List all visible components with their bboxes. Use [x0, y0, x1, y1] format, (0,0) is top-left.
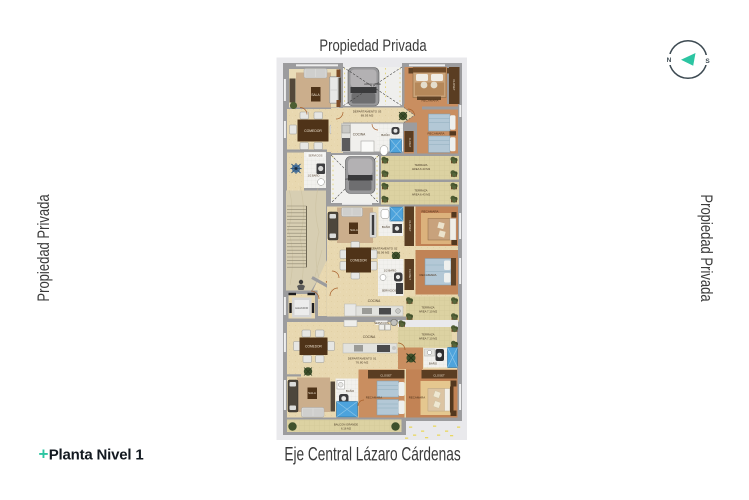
svg-text:ELEVADOR: ELEVADOR	[295, 307, 308, 310]
svg-text:6.16 M2: 6.16 M2	[341, 427, 352, 431]
svg-text:CLOSET: CLOSET	[380, 374, 392, 378]
svg-text:+Planta Nivel 1: +Planta Nivel 1	[39, 445, 144, 464]
svg-text:RECAMARA: RECAMARA	[427, 132, 444, 136]
svg-text:SALA: SALA	[311, 93, 320, 97]
svg-text:N: N	[667, 57, 672, 64]
svg-text:RECAMARA: RECAMARA	[366, 396, 382, 400]
svg-text:Propiedad Privada: Propiedad Privada	[36, 194, 54, 302]
svg-text:RECAMARA: RECAMARA	[421, 99, 438, 103]
svg-text:CLOSET: CLOSET	[408, 138, 411, 148]
svg-text:SALA: SALA	[308, 391, 316, 395]
svg-text:RECAMARA: RECAMARA	[421, 210, 438, 214]
svg-text:COCINA: COCINA	[353, 133, 366, 137]
svg-text:SALA: SALA	[350, 228, 358, 232]
svg-text:BAÑO: BAÑO	[381, 132, 390, 137]
svg-text:AREA 7.10 M2: AREA 7.10 M2	[419, 310, 438, 314]
svg-text:CLOSET: CLOSET	[433, 374, 445, 378]
svg-text:COMEDOR: COMEDOR	[350, 259, 367, 263]
svg-text:AREA LIBRE: AREA LIBRE	[364, 82, 381, 86]
svg-text:COMEDOR: COMEDOR	[305, 345, 322, 349]
svg-text:CLOSET: CLOSET	[408, 220, 412, 231]
svg-text:BAÑO: BAÑO	[429, 361, 438, 366]
svg-text:BAÑO: BAÑO	[346, 388, 355, 393]
svg-text:BAÑO: BAÑO	[382, 224, 391, 229]
svg-text:1/2 BAÑO: 1/2 BAÑO	[384, 268, 397, 273]
svg-text:69.93 M2: 69.93 M2	[361, 114, 374, 118]
svg-text:Propiedad Privada: Propiedad Privada	[319, 38, 427, 56]
svg-text:RECAMARA: RECAMARA	[409, 395, 425, 399]
svg-text:S: S	[705, 58, 710, 65]
svg-text:COMEDOR: COMEDOR	[304, 129, 322, 133]
svg-text:65.06 M2: 65.06 M2	[377, 251, 390, 255]
svg-text:COCINA: COCINA	[368, 299, 381, 303]
svg-text:AREA 7.10 M2: AREA 7.10 M2	[419, 337, 438, 341]
svg-text:AREA 6.43 M2: AREA 6.43 M2	[412, 193, 431, 197]
svg-text:SERVICIOS: SERVICIOS	[308, 153, 322, 157]
svg-text:Eje Central Lázaro Cárdenas: Eje Central Lázaro Cárdenas	[284, 443, 460, 465]
svg-text:Propiedad Privada: Propiedad Privada	[697, 194, 715, 302]
svg-text:AREA LIBRE: AREA LIBRE	[345, 177, 362, 181]
svg-text:COCINA: COCINA	[363, 335, 376, 339]
svg-text:RECAMARA: RECAMARA	[419, 273, 436, 277]
svg-text:76.80 M2: 76.80 M2	[356, 361, 369, 365]
svg-text:AREA 6.43 M2: AREA 6.43 M2	[412, 167, 431, 171]
svg-text:CLOSET: CLOSET	[408, 269, 412, 280]
svg-text:CLOSET: CLOSET	[452, 79, 456, 90]
svg-text:SERVICIOS: SERVICIOS	[382, 289, 397, 293]
